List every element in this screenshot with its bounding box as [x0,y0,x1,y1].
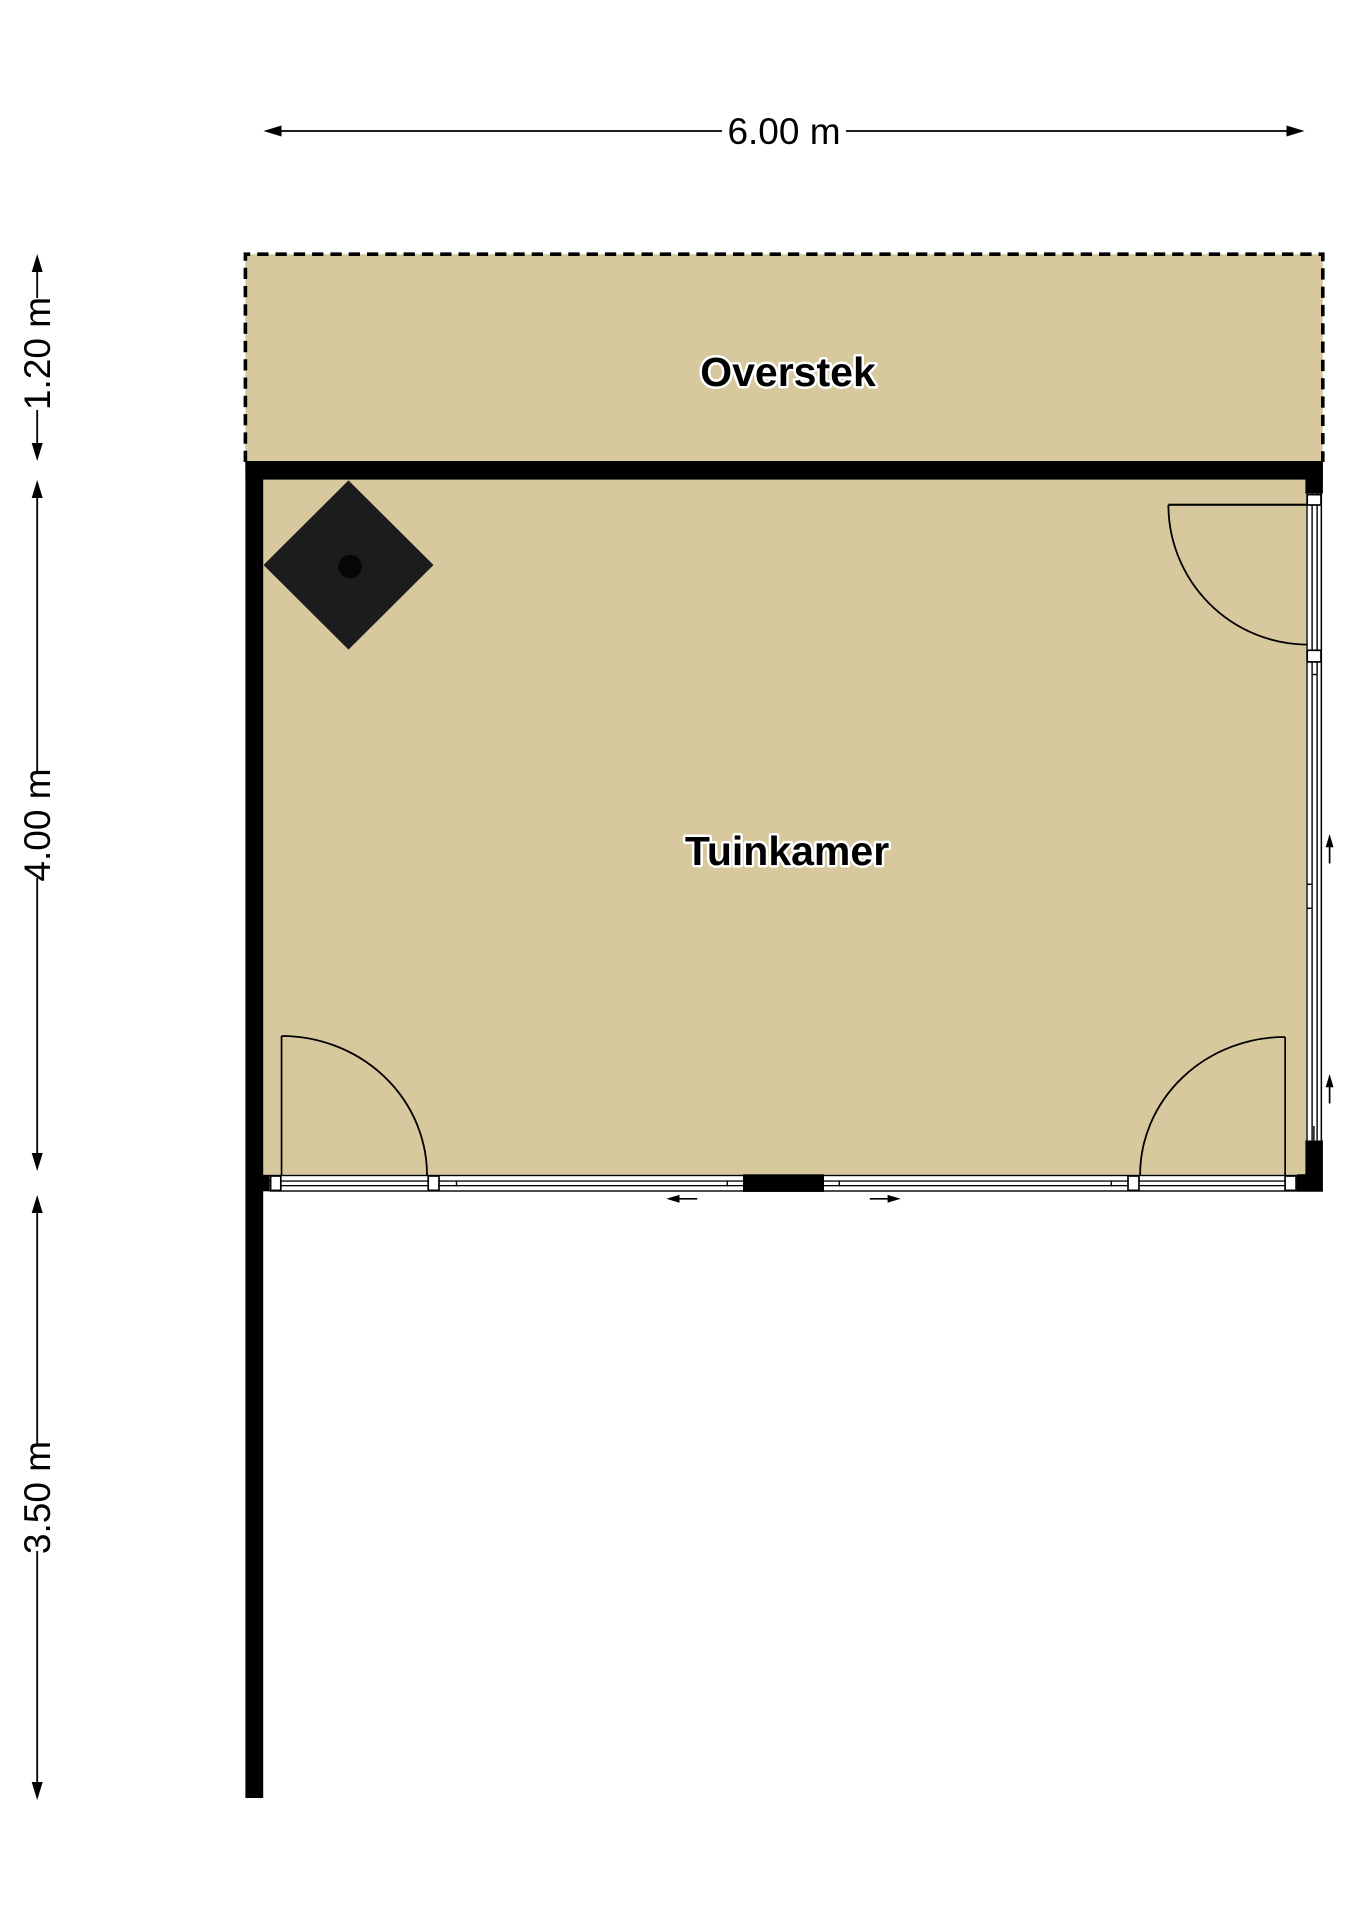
svg-text:4.00 m: 4.00 m [17,768,58,881]
svg-text:3.50 m: 3.50 m [17,1441,58,1554]
svg-text:Tuinkamer: Tuinkamer [685,828,889,874]
svg-text:6.00 m: 6.00 m [727,111,840,152]
svg-text:1.20 m: 1.20 m [17,297,58,410]
svg-text:Overstek: Overstek [700,349,876,395]
